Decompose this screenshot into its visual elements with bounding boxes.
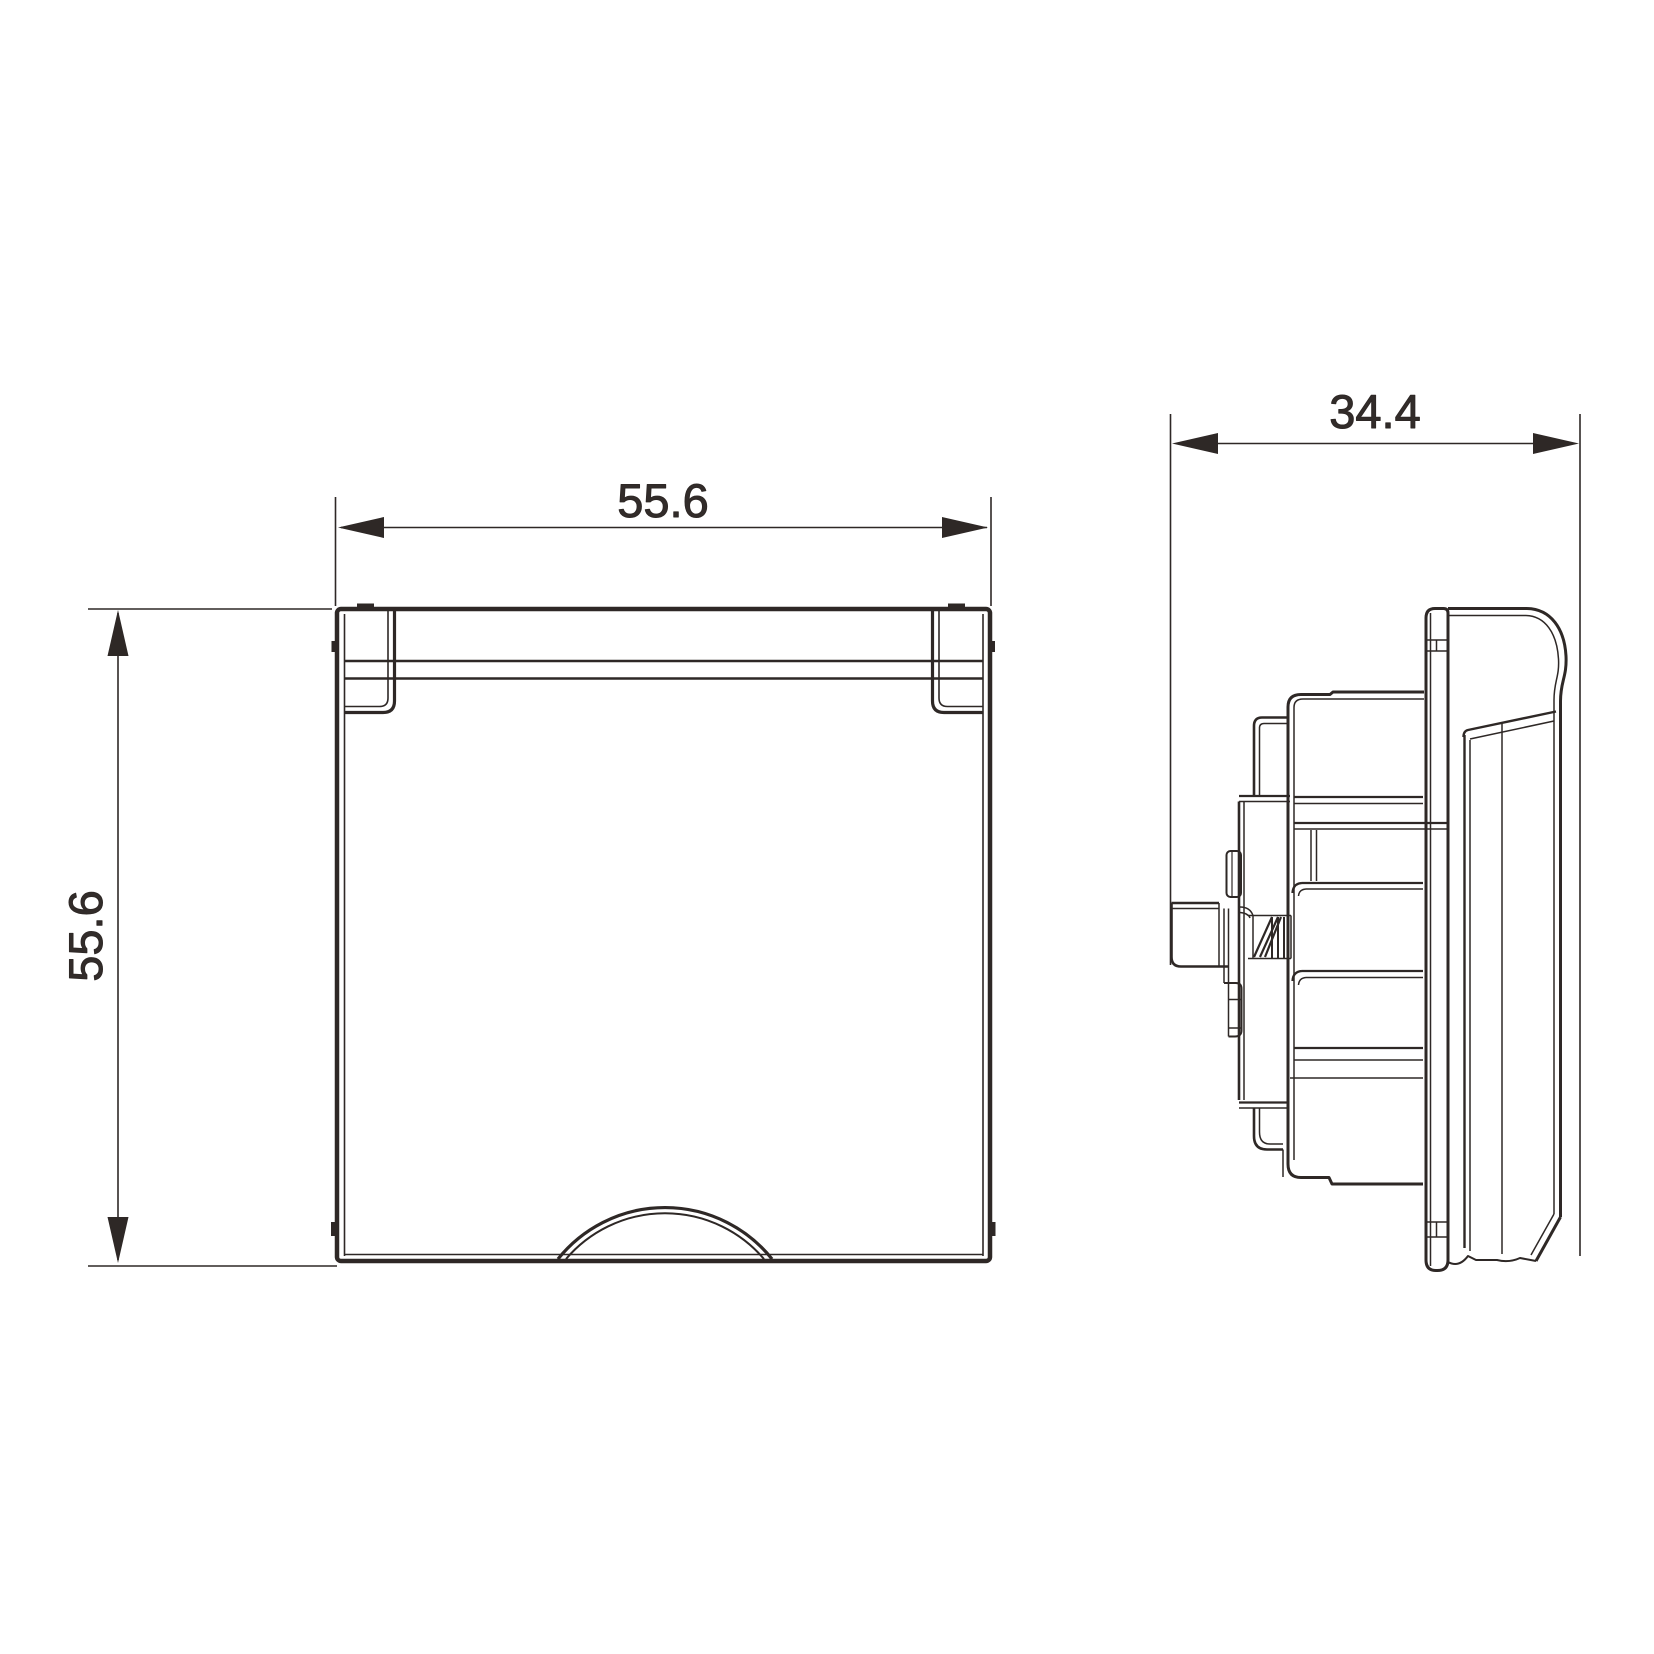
dimension-label-front-width: 55.6 <box>617 474 708 527</box>
front-cover-outline <box>337 609 990 1261</box>
arrowhead-right <box>1533 433 1579 454</box>
flap-bottom-edge <box>1448 1256 1536 1264</box>
hinge-pin-tick-right <box>948 604 965 610</box>
hinge-pin-tick-left <box>357 604 374 610</box>
dimension-label-side-depth: 34.4 <box>1329 385 1420 438</box>
faceplate-strip <box>1426 609 1448 1271</box>
drawing-canvas: 55.6 55.6 34.4 <box>0 0 1654 1654</box>
arrowhead-left <box>338 517 384 538</box>
flap-outer-curve <box>1527 609 1566 1218</box>
mounting-body-outline <box>1288 692 1424 1184</box>
finger-grip-arc <box>558 1208 772 1259</box>
arrowhead-left <box>1172 433 1218 454</box>
dimension-side-depth: 34.4 <box>1171 385 1581 1256</box>
side-view <box>1172 609 1567 1271</box>
dimension-front-width: 55.6 <box>336 474 992 606</box>
arrowhead-up <box>108 610 129 656</box>
arrowhead-down <box>108 1217 129 1263</box>
arrowhead-right <box>942 517 988 538</box>
front-view <box>331 604 996 1262</box>
dimension-front-height: 55.6 <box>59 609 337 1266</box>
dimension-label-front-height: 55.6 <box>59 890 112 981</box>
technical-drawing: 55.6 55.6 34.4 <box>0 0 1654 1654</box>
